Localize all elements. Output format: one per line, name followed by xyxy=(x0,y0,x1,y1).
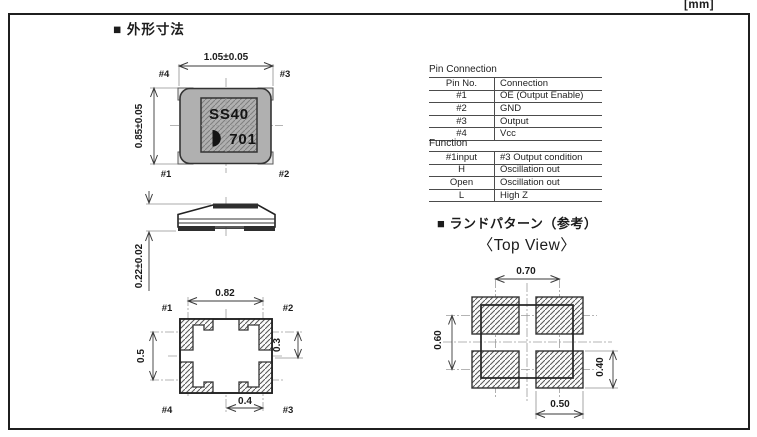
cell-connection: OE (Output Enable) xyxy=(495,90,603,103)
land-pads xyxy=(472,297,583,388)
table-title: Function xyxy=(429,138,602,151)
col-header-output-condition: #3 Output condition xyxy=(495,152,603,165)
pin-label-4: #4 xyxy=(159,69,170,80)
table-header-row: #1input #3 Output condition xyxy=(429,152,602,165)
cell-input: L xyxy=(429,189,495,202)
pin-label-1: #1 xyxy=(161,169,172,180)
dim-width-label: 1.05±0.05 xyxy=(204,52,249,63)
cell-pin: #2 xyxy=(429,103,495,116)
pin-label-2: #2 xyxy=(279,169,290,180)
pin-label-1-bottom: #1 xyxy=(162,303,173,314)
col-header-pin-no: Pin No. xyxy=(429,78,495,91)
table-row: Open Oscillation out xyxy=(429,177,602,190)
dim-land-pitch-v-label: 0.60 xyxy=(433,330,444,350)
table-row: L High Z xyxy=(429,189,602,202)
cell-condition: Oscillation out xyxy=(495,177,603,190)
pin-label-2-bottom: #2 xyxy=(283,303,294,314)
land-pattern-subheading: 〈Top View〉 xyxy=(437,233,617,255)
marking-text-line1: SS40 xyxy=(209,106,249,123)
col-header-input: #1input xyxy=(429,152,495,165)
table-row: #2 GND xyxy=(429,103,602,116)
dim-thickness-label: 0.22±0.02 xyxy=(134,243,145,288)
dim-bottom-width-label: 0.82 xyxy=(215,288,235,299)
cell-input: H xyxy=(429,164,495,177)
table-title: Pin Connection xyxy=(429,64,602,77)
top-view-drawing: 1.05±0.05 0.85±0.05 SS40 701 #4 #3 xyxy=(134,52,290,180)
dim-pad-pitch-v-label: 0.5 xyxy=(136,349,147,363)
cell-connection: Output xyxy=(495,115,603,128)
dim-pad-height-label: 0.3 xyxy=(272,338,283,352)
dim-land-pitch-h-label: 0.70 xyxy=(516,266,536,277)
table-row: #3 Output xyxy=(429,115,602,128)
cell-input: Open xyxy=(429,177,495,190)
table-row: #1 OE (Output Enable) xyxy=(429,90,602,103)
bottom-view-drawing: 0.82 0.5 0.3 0.4 #1 #2 #4 #3 xyxy=(136,288,303,416)
table-row: H Oscillation out xyxy=(429,164,602,177)
marking-text-line2: 701 xyxy=(229,131,256,148)
dim-height-label: 0.85±0.05 xyxy=(134,103,145,148)
pin-label-4-bottom: #4 xyxy=(162,405,173,416)
dim-pad-offset-label: 0.4 xyxy=(238,396,252,407)
datasheet-page: [mm] ■ 外形寸法 1.05±0.05 xyxy=(0,0,757,437)
units-label: [mm] xyxy=(684,0,714,11)
dim-land-height-label: 0.40 xyxy=(595,357,606,377)
package-drawings: 1.05±0.05 0.85±0.05 SS40 701 #4 #3 xyxy=(130,40,320,430)
pin-label-3-bottom: #3 xyxy=(283,405,294,416)
land-pattern-heading: ■ ランドパターン（参考） xyxy=(437,213,597,232)
dim-land-width-label: 0.50 xyxy=(550,399,570,410)
function-table: Function #1input #3 Output condition H O… xyxy=(429,138,602,202)
col-header-connection: Connection xyxy=(495,78,603,91)
pin-connection-table: Pin Connection Pin No. Connection #1 OE … xyxy=(429,64,602,141)
cell-pin: #3 xyxy=(429,115,495,128)
cell-pin: #1 xyxy=(429,90,495,103)
package-lid xyxy=(213,204,258,209)
outline-section-heading: ■ 外形寸法 xyxy=(113,18,185,38)
cell-connection: GND xyxy=(495,103,603,116)
side-view-drawing: 0.22±0.02 xyxy=(134,191,275,291)
cell-condition: Oscillation out xyxy=(495,164,603,177)
table-header-row: Pin No. Connection xyxy=(429,78,602,91)
cell-condition: High Z xyxy=(495,189,603,202)
pin-label-3: #3 xyxy=(280,69,291,80)
land-pattern-drawing: 0.70 0.60 0.40 0.50 xyxy=(425,258,640,428)
